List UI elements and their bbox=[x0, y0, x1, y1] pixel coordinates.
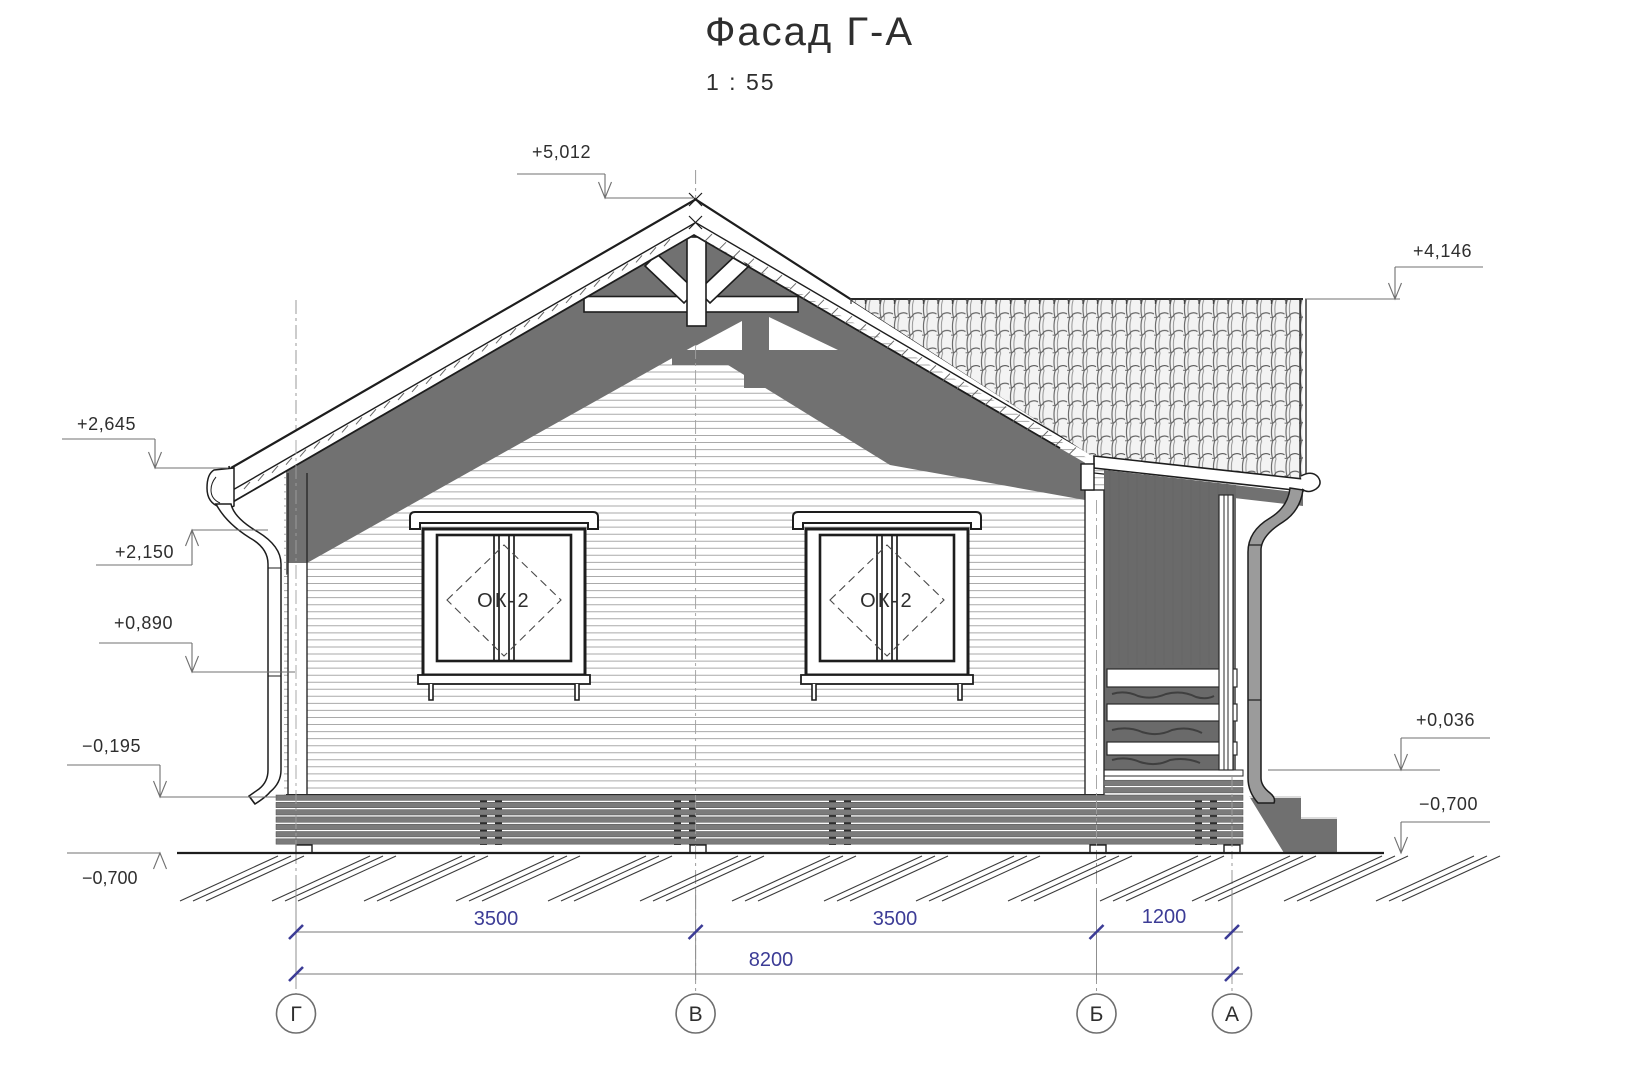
svg-text:+5,012: +5,012 bbox=[532, 142, 591, 162]
svg-text:−0,700: −0,700 bbox=[1419, 794, 1478, 814]
svg-text:−0,195: −0,195 bbox=[82, 736, 141, 756]
svg-text:+2,150: +2,150 bbox=[115, 542, 174, 562]
svg-text:8200: 8200 bbox=[749, 949, 794, 971]
svg-text:3500: 3500 bbox=[474, 908, 519, 930]
svg-text:3500: 3500 bbox=[873, 908, 918, 930]
svg-text:+0,036: +0,036 bbox=[1416, 710, 1475, 730]
svg-text:В: В bbox=[689, 1003, 703, 1026]
svg-text:ОК-2: ОК-2 bbox=[860, 590, 914, 612]
svg-text:Г: Г bbox=[290, 1003, 301, 1026]
svg-text:Фасад Г-А: Фасад Г-А bbox=[705, 10, 914, 54]
svg-text:−0,700: −0,700 bbox=[82, 868, 138, 888]
svg-text:Б: Б bbox=[1090, 1003, 1104, 1026]
svg-text:+4,146: +4,146 bbox=[1413, 241, 1472, 261]
svg-text:1200: 1200 bbox=[1142, 906, 1187, 928]
svg-text:+2,645: +2,645 bbox=[77, 414, 136, 434]
svg-text:А: А bbox=[1225, 1003, 1239, 1026]
svg-text:ОК-2: ОК-2 bbox=[477, 590, 531, 612]
svg-text:+0,890: +0,890 bbox=[114, 613, 173, 633]
svg-text:1 : 55: 1 : 55 bbox=[706, 69, 776, 95]
